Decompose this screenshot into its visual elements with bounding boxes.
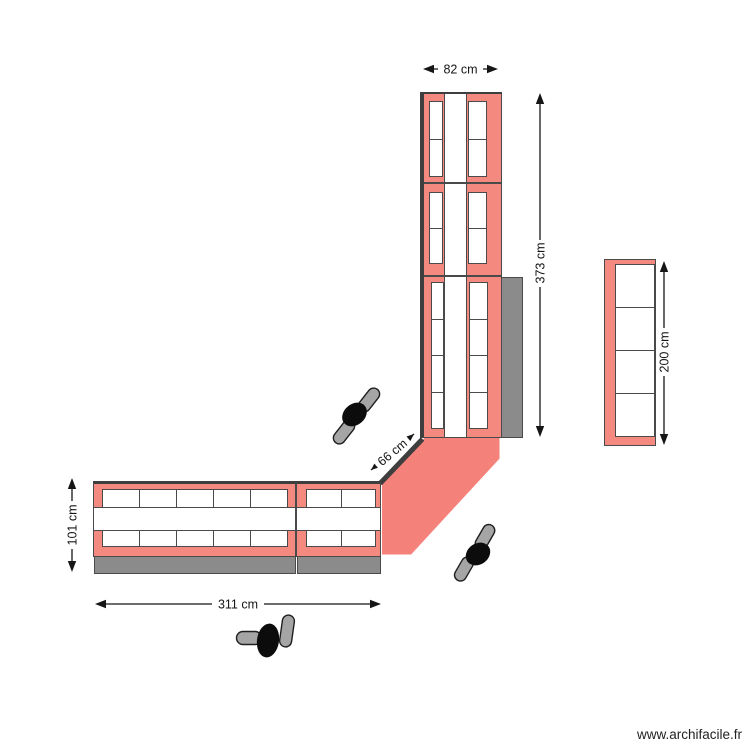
dimension-shelf-height: 200 cm: [658, 261, 672, 445]
dimension-run-depth: 101 cm: [66, 478, 80, 572]
arrow-down-icon: [536, 426, 544, 437]
dimension-label: 311 cm: [218, 598, 258, 612]
arrow-up-icon: [536, 93, 544, 104]
dimension-corner-front: 66 cm: [371, 434, 414, 472]
arrow-right-icon: [487, 65, 498, 73]
arrow-down-icon: [68, 561, 76, 572]
arrow-up-icon: [660, 261, 668, 272]
arrow-up-icon: [68, 478, 76, 489]
annotations-layer: 82 cm 373 cm 200 cm 101 cm 3: [0, 0, 750, 750]
arrow-down-icon: [660, 434, 668, 445]
person-icon[interactable]: [237, 614, 296, 659]
dimension-label: 82 cm: [443, 63, 477, 77]
dimension-column-height: 373 cm: [534, 93, 548, 437]
arrow-left-icon: [95, 600, 106, 608]
dimension-label: 200 cm: [658, 332, 672, 373]
person-icon[interactable]: [452, 522, 497, 583]
person-icon[interactable]: [331, 386, 382, 447]
floor-plan-canvas: 82 cm 373 cm 200 cm 101 cm 3: [0, 0, 750, 750]
watermark: www.archifacile.fr: [637, 727, 742, 742]
dimension-label: 373 cm: [534, 243, 548, 284]
arrow-right-icon: [370, 600, 381, 608]
arrow-left-icon: [423, 65, 434, 73]
dimension-label: 101 cm: [66, 505, 80, 546]
dimension-run-length: 311 cm: [95, 598, 381, 612]
dimension-label: 66 cm: [375, 436, 410, 469]
dimension-column-width: 82 cm: [423, 63, 498, 77]
